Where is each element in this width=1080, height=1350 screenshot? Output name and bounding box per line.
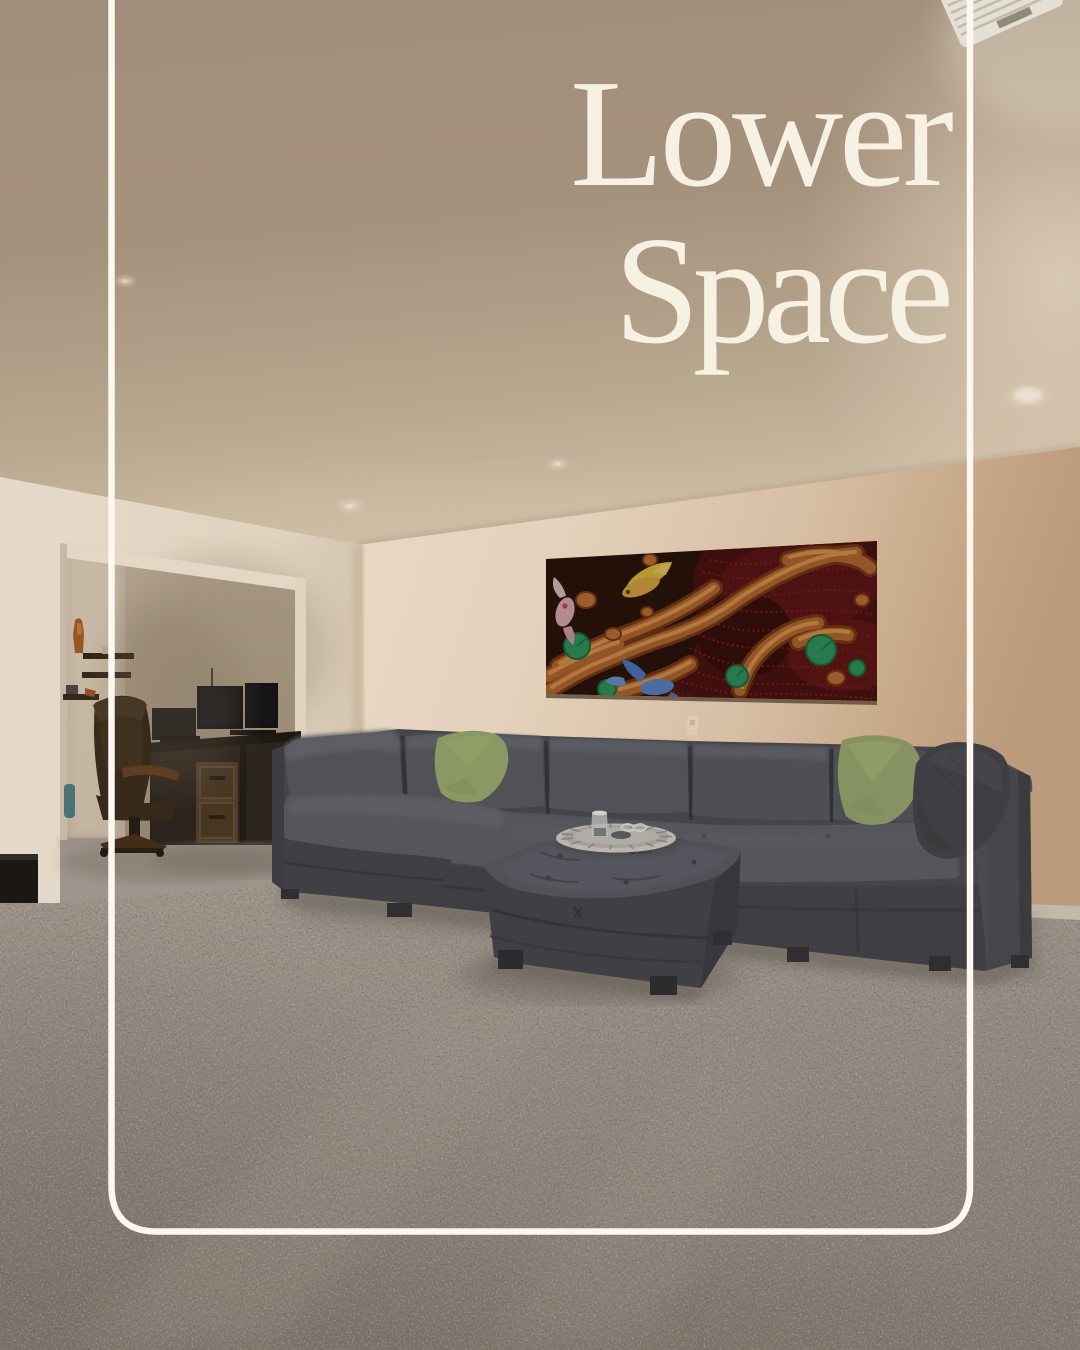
svg-text:Lower: Lower xyxy=(570,49,954,219)
svg-text:Space: Space xyxy=(614,206,954,376)
